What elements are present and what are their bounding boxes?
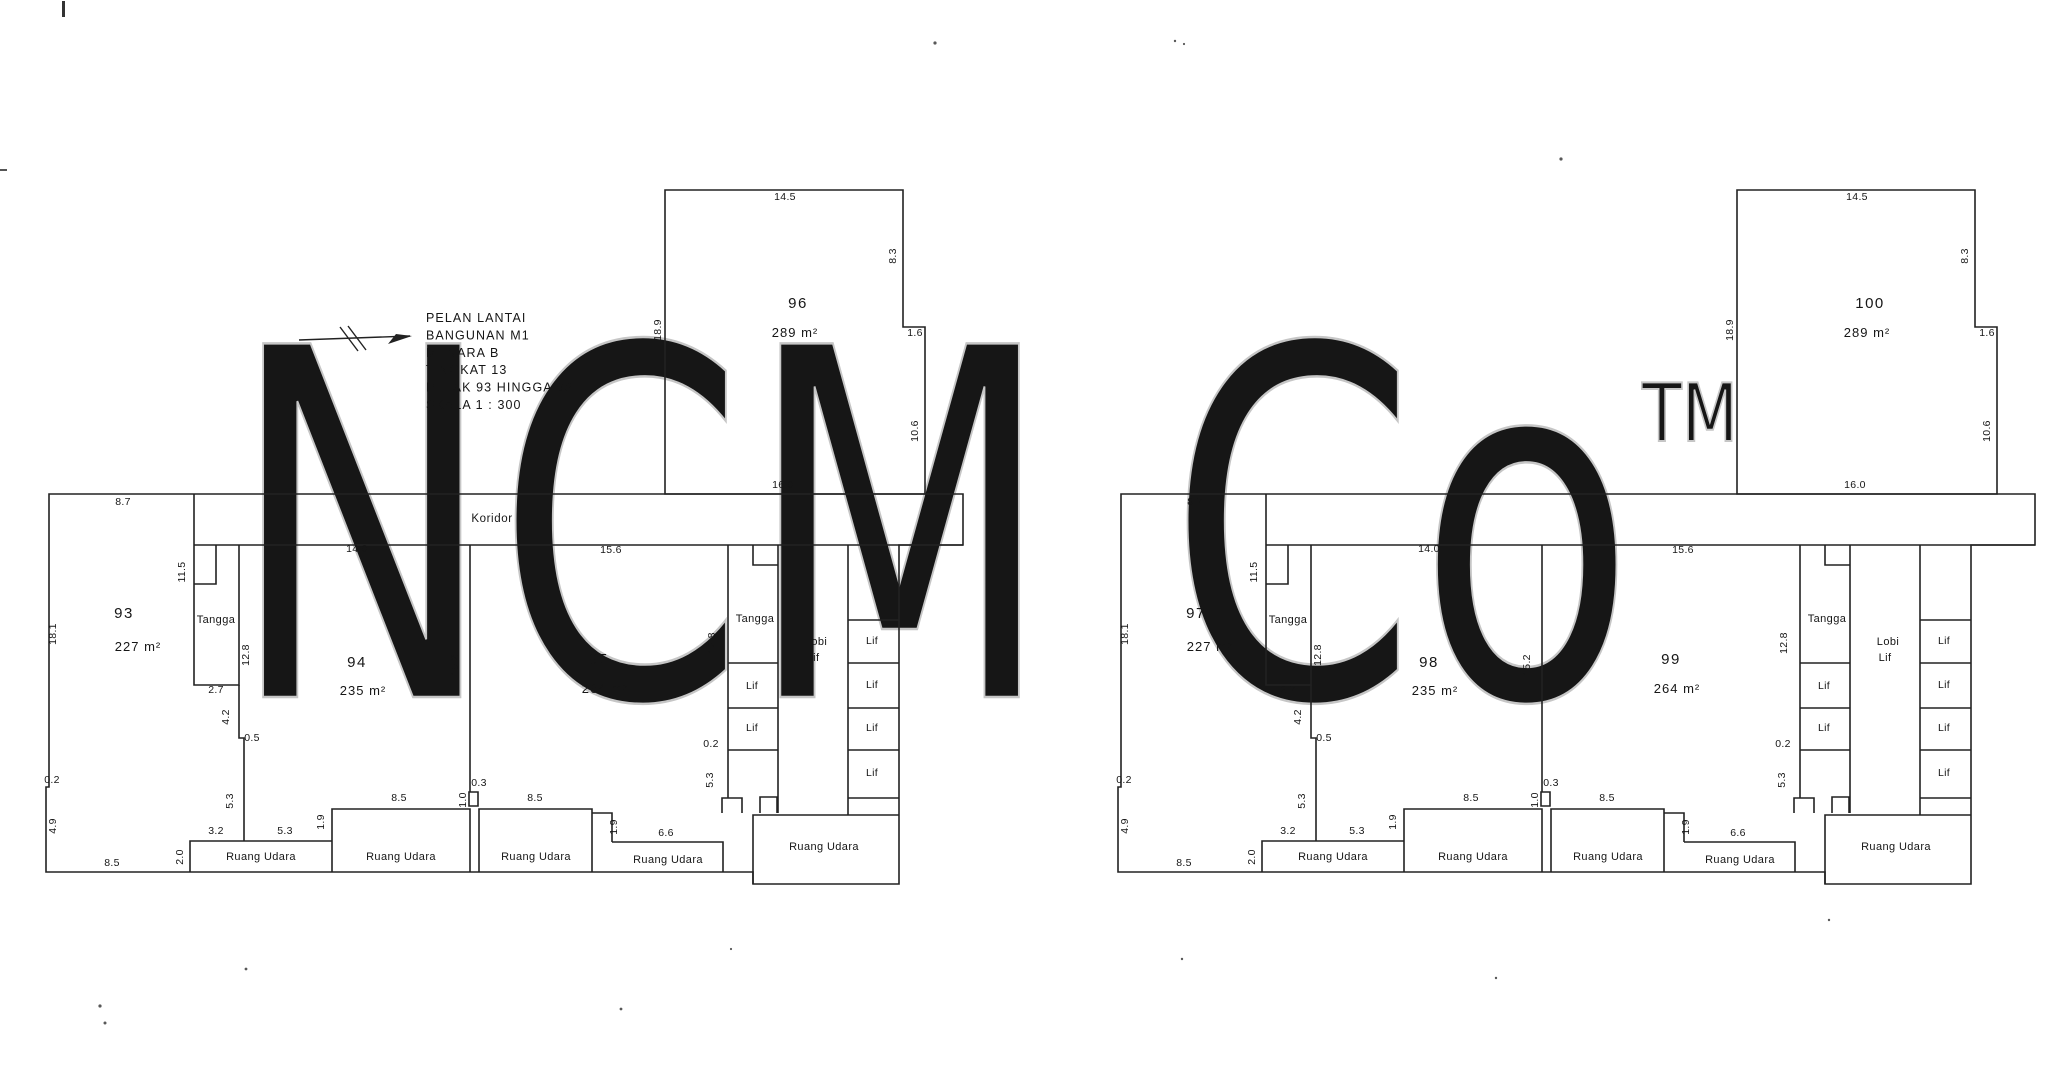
- room-number-label: 99: [1661, 651, 1681, 668]
- ruang-udara-label: Ruang Udara: [789, 841, 859, 853]
- dimension-label: 1.9: [608, 819, 620, 835]
- dimension-label: 8.5: [391, 792, 407, 804]
- dimension-label: 4.9: [47, 818, 59, 834]
- dimension-label: 8.7: [1187, 496, 1203, 508]
- floor-plan-canvas: NCM CoTM8.718.10.24.98.511.512.82.74.20.…: [0, 0, 2048, 1072]
- lobi-lif-label: Lobi: [1877, 636, 1899, 648]
- dimension-label: 1.0: [457, 792, 469, 808]
- ruang-udara-label: Ruang Udara: [633, 854, 703, 866]
- ruang-udara-label: Ruang Udara: [226, 851, 296, 863]
- room-area-label: 264 m²: [582, 681, 628, 696]
- lif-label: Lif: [1818, 722, 1830, 734]
- lobi-lif-label: Lif: [807, 652, 820, 664]
- dimension-label: 6.6: [658, 827, 674, 839]
- lif-label: Lif: [746, 722, 758, 734]
- wall-path: [1794, 798, 1814, 813]
- dimension-label: 0.2: [44, 774, 60, 786]
- tangga-label: Tangga: [1808, 613, 1847, 625]
- room-number-label: 97: [1186, 605, 1206, 622]
- dimension-label: 8.3: [1959, 248, 1971, 264]
- dimension-label: 18.1: [1119, 623, 1131, 645]
- dimension-label: 8.5: [1599, 792, 1615, 804]
- scan-speck: [98, 1004, 101, 1007]
- scan-speck: [1495, 977, 1497, 979]
- wall-path: [194, 545, 216, 584]
- dimension-label: 5.3: [1349, 825, 1365, 837]
- ruang-udara-label: Ruang Udara: [1705, 854, 1775, 866]
- dimension-label: 4.2: [1292, 709, 1304, 725]
- lif-label: Lif: [1938, 679, 1950, 691]
- dimension-label: 0.5: [1316, 732, 1332, 744]
- dimension-label: 12.8: [1778, 632, 1790, 654]
- dimension-label: 18.9: [652, 319, 664, 341]
- lif-label: Lif: [866, 722, 878, 734]
- dimension-label: 2.0: [174, 849, 186, 865]
- dimension-label: 14.0: [1418, 543, 1440, 555]
- room-area-label: 289 m²: [772, 325, 818, 340]
- room-number-label: 96: [788, 295, 808, 312]
- dimension-label: 3.2: [1280, 825, 1296, 837]
- dimension-label: 16.0: [1844, 479, 1866, 491]
- dimension-label: 5.3: [224, 793, 236, 809]
- watermark-tm-text: TM: [1641, 367, 1738, 460]
- plan-title-line: PETAK 93 HINGGA 96: [426, 381, 573, 395]
- scan-speck: [1828, 919, 1830, 921]
- plan-title-line: MENARA B: [426, 346, 499, 360]
- scan-speck: [730, 948, 732, 950]
- room-number-label: 94: [347, 654, 367, 671]
- dimension-label: 2.0: [1246, 849, 1258, 865]
- ruang-udara-label: Ruang Udara: [1438, 851, 1508, 863]
- dimension-label: 18.1: [47, 623, 59, 645]
- dimension-label: 0.3: [471, 777, 487, 789]
- dimension-label: 6.6: [1730, 827, 1746, 839]
- room-area-label: 227 m²: [1187, 639, 1233, 654]
- lobi-lif-label: Lobi: [805, 636, 827, 648]
- plan-title-line: TINGKAT 13: [426, 363, 507, 377]
- plan-title-line: SKALA 1 : 300: [426, 398, 522, 412]
- dimension-label: 1.6: [907, 327, 923, 339]
- koridor-label: Koridor: [471, 513, 512, 525]
- lif-label: Lif: [746, 680, 758, 692]
- ruang-udara-label: Ruang Udara: [501, 851, 571, 863]
- room-area-label: 289 m²: [1844, 325, 1890, 340]
- scanned-floor-plan-document: NCM CoTM8.718.10.24.98.511.512.82.74.20.…: [0, 0, 2048, 1072]
- dimension-label: 11.5: [176, 562, 188, 583]
- lif-label: Lif: [866, 635, 878, 647]
- wall-path: [1825, 545, 1850, 565]
- dimension-label: 5.3: [1776, 772, 1788, 788]
- scan-speck: [62, 1, 65, 17]
- dimension-label: 5.3: [277, 825, 293, 837]
- ruang-udara-label: Ruang Udara: [1573, 851, 1643, 863]
- plan-title-line: PELAN LANTAI: [426, 311, 527, 325]
- dimension-label: 1.9: [1680, 819, 1692, 835]
- dimension-label: 12.8: [706, 632, 718, 654]
- dimension-label: 0.5: [244, 732, 260, 744]
- scan-speck: [1183, 43, 1185, 45]
- dimension-label: 14.5: [1846, 191, 1868, 203]
- scan-speck: [1181, 958, 1183, 960]
- room-area-label: 235 m²: [1412, 683, 1458, 698]
- dimension-label: 0.2: [703, 738, 719, 750]
- dimension-label: 8.5: [104, 857, 120, 869]
- tangga-label: Tangga: [1269, 614, 1308, 626]
- room-number-label: 98: [1419, 654, 1439, 671]
- dimension-label: 8.5: [1176, 857, 1192, 869]
- dimension-label: 14.5: [774, 191, 796, 203]
- dimension-label: 12.8: [240, 644, 252, 666]
- dimension-label: 0.2: [1775, 738, 1791, 750]
- scan-speck: [245, 968, 248, 971]
- dimension-label: 5.3: [704, 772, 716, 788]
- room-area-label: 235 m²: [340, 683, 386, 698]
- room-area-label: 227 m²: [115, 639, 161, 654]
- dimension-label: 1.9: [1387, 814, 1399, 830]
- room-number-label: 95: [589, 651, 609, 668]
- plan-title-line: BANGUNAN M1: [426, 328, 530, 342]
- lif-label: Lif: [1938, 635, 1950, 647]
- dimension-label: 4.2: [220, 709, 232, 725]
- dimension-label: 14.0: [346, 543, 368, 555]
- dimension-label: 1.0: [1529, 792, 1541, 808]
- dimension-label: 15.2: [1521, 654, 1533, 676]
- lif-label: Lif: [1938, 767, 1950, 779]
- scan-speck: [1174, 40, 1176, 42]
- dimension-label: 0.2: [1116, 774, 1132, 786]
- lif-label: Lif: [1818, 680, 1830, 692]
- scan-speck: [104, 1022, 107, 1025]
- ruang-udara-label: Ruang Udara: [1298, 851, 1368, 863]
- dimension-label: 1.6: [1979, 327, 1995, 339]
- dimension-label: 12.8: [1312, 644, 1324, 666]
- scan-speck: [0, 169, 7, 171]
- dimension-label: 1.9: [315, 814, 327, 830]
- dimension-label: 2.7: [208, 684, 224, 696]
- room-area-label: 264 m²: [1654, 681, 1700, 696]
- dimension-label: 4.9: [1119, 818, 1131, 834]
- wall-path: [1737, 190, 1997, 494]
- scan-speck: [1559, 157, 1562, 160]
- dimension-label: 8.5: [1463, 792, 1479, 804]
- dimension-label: 8.3: [887, 248, 899, 264]
- dimension-label: 16.0: [772, 479, 794, 491]
- tangga-label: Tangga: [736, 613, 775, 625]
- ruang-udara-label: Ruang Udara: [366, 851, 436, 863]
- dimension-label: 15.6: [600, 544, 622, 556]
- room-number-label: 100: [1855, 295, 1885, 312]
- dimension-label: 8.5: [527, 792, 543, 804]
- lif-label: Lif: [866, 679, 878, 691]
- scan-speck: [620, 1008, 623, 1011]
- dimension-label: 8.7: [115, 496, 131, 508]
- dimension-label: 5.3: [1296, 793, 1308, 809]
- dimension-label: 0.3: [1543, 777, 1559, 789]
- room-number-label: 93: [114, 605, 134, 622]
- dimension-label: 2.7: [1280, 684, 1296, 696]
- lobi-lif-label: Lif: [1879, 652, 1892, 664]
- dimension-label: 15.2: [449, 654, 461, 676]
- dimension-label: 15.6: [1672, 544, 1694, 556]
- tangga-label: Tangga: [197, 614, 236, 626]
- wall-path: [1832, 797, 1849, 813]
- dimension-label: 18.9: [1724, 319, 1736, 341]
- ruang-udara-label: Ruang Udara: [1861, 841, 1931, 853]
- dimension-label: 10.6: [909, 420, 921, 442]
- dimension-label: 3.2: [208, 825, 224, 837]
- lif-label: Lif: [1938, 722, 1950, 734]
- lif-label: Lif: [866, 767, 878, 779]
- dimension-label: 10.6: [1981, 420, 1993, 442]
- scan-speck: [933, 41, 936, 44]
- dimension-label: 11.5: [1248, 562, 1260, 583]
